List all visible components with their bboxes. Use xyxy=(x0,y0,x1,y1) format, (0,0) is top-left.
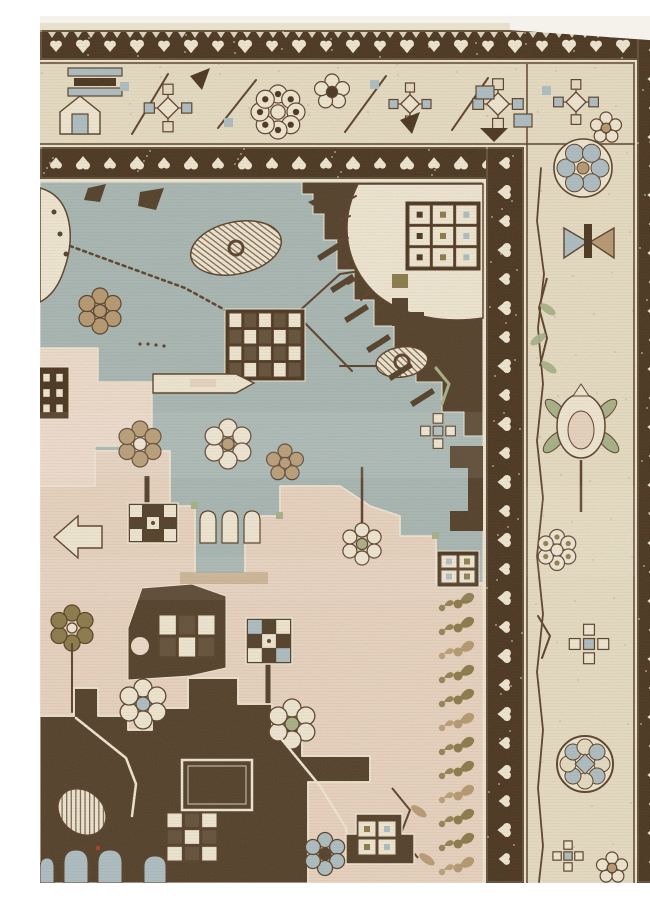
top-margin xyxy=(40,16,650,23)
selvage-fringe xyxy=(40,23,510,30)
weft-texture xyxy=(40,30,650,883)
rug-photograph: Photograph of an antique hand-knotted Pe… xyxy=(40,16,650,883)
rug-svg xyxy=(40,16,650,883)
